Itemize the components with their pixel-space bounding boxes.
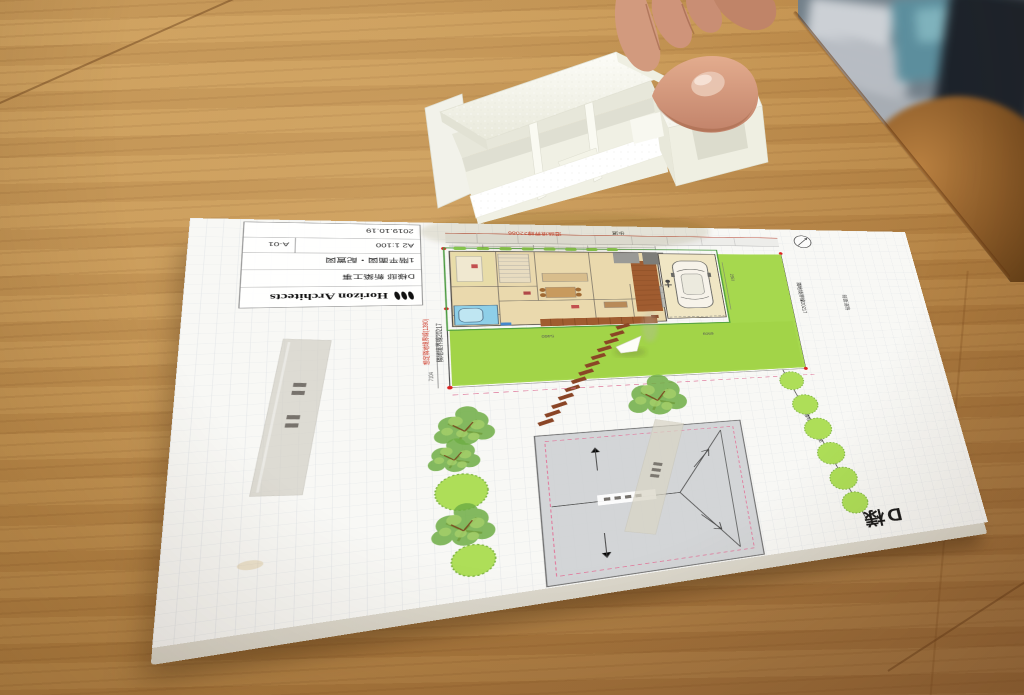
photo-scene: 道路境界線22086 歩道 想定隣地境界線(1390) 隣地境界線20217 隣… — [0, 0, 1024, 695]
foreground-overlay — [0, 0, 1024, 695]
knuckle — [714, 0, 776, 30]
model-shadow — [420, 212, 710, 252]
small-foam-piece — [614, 312, 658, 357]
blurred-smudge — [642, 312, 658, 342]
